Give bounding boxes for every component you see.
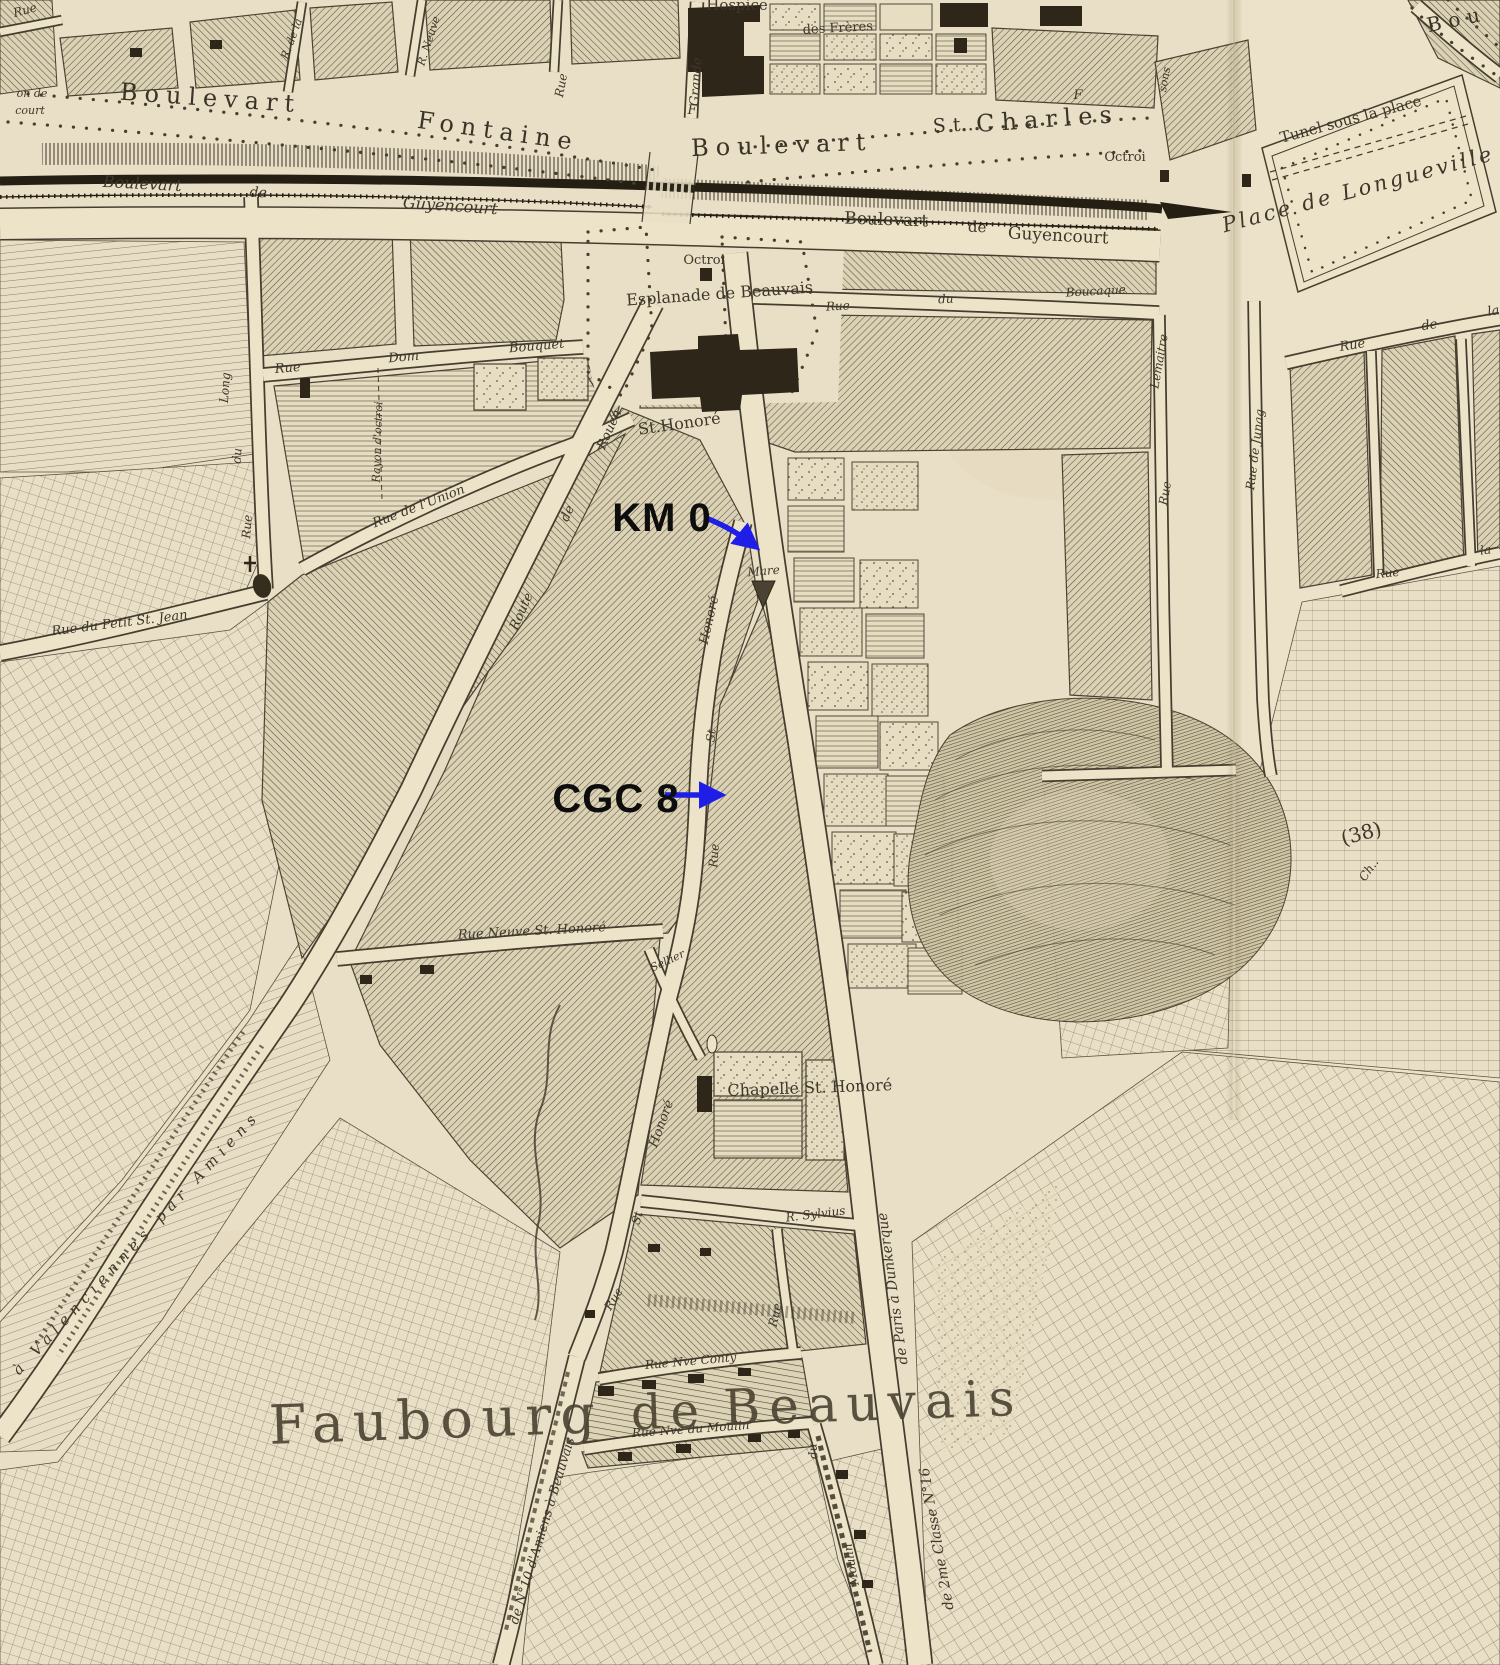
map-label-9: de [968,218,987,237]
cgc-8-label: CGC 8 [552,777,679,821]
map-label-3: St. [932,113,981,137]
historic-map-screenshot: BoulevartFontaineBoulevartSt.CharlesBoul… [0,0,1500,1665]
map-label-21: F [1072,88,1083,103]
map-label-67: du [805,1443,820,1460]
map-label-8: Boulevart [844,209,929,232]
map-label-27: de [1420,317,1438,334]
map-label-32: Rue [825,298,851,313]
map-label-22: Octroi [1104,150,1145,165]
chapelle-building [697,1076,712,1112]
map-label-33: du [938,292,954,307]
map-label-19: court [15,104,45,117]
map-label-38: Rue [1374,565,1400,582]
map-label-51: Long [217,372,233,405]
map-label-49: Dom [387,349,420,367]
map-label-28: la [1486,303,1500,320]
map-label-52: du [229,448,244,464]
octroi-post [700,268,712,281]
map-canvas: BoulevartFontaineBoulevartSt.CharlesBoul… [0,0,1500,1665]
map-label-18: on de [17,87,48,100]
map-label-53: Rue [239,514,255,540]
map-label-44: Rue [706,843,722,869]
map-label-39: la [1479,542,1491,557]
map-label-29: Octroi [683,253,724,268]
octroi-post [1160,170,1169,182]
km-0-label: KM 0 [612,496,712,540]
map-label-43: St [703,728,718,743]
fold-crease [1226,0,1242,1120]
map-label-6: de [249,185,267,202]
map-label-76: de [630,1383,709,1442]
map-label-41: Mare [746,563,780,580]
map-label-20: F [686,103,697,118]
map-label-75: Faubourg [268,1382,605,1457]
map-label-77: Beauvais [722,1369,1024,1437]
map-label-48: Rue [273,360,301,377]
map-label-11: Hospice [706,0,768,14]
